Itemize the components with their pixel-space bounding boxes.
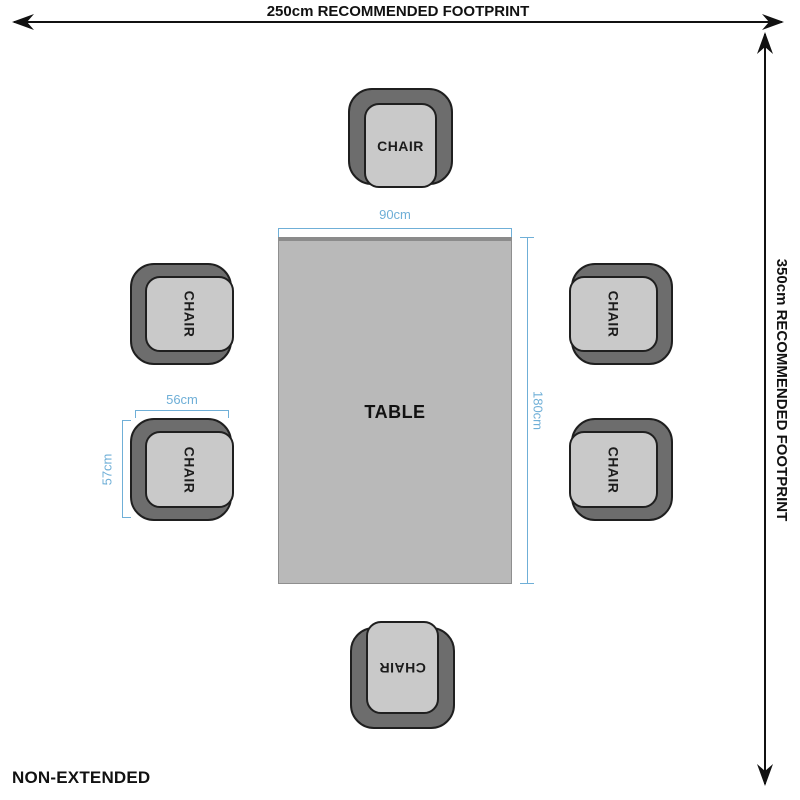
table-width-dim-tick-left xyxy=(278,228,279,237)
chair-width-dim-label: 56cm xyxy=(132,392,232,407)
table-width-dim-line xyxy=(278,228,512,229)
table-depth-dim-tick-top xyxy=(520,237,534,238)
footprint-diagram: 250cm RECOMMENDED FOOTPRINT 350cm RECOMM… xyxy=(0,0,800,800)
chair-seat: CHAIR xyxy=(145,276,234,352)
chair-top: CHAIR xyxy=(348,88,453,185)
chair-width-dim-tick-right xyxy=(228,410,229,418)
footprint-height-label: 350cm RECOMMENDED FOOTPRINT xyxy=(774,220,790,560)
chair-seat: CHAIR xyxy=(569,431,658,508)
chair-width-dim-line xyxy=(135,410,229,411)
chair-label: CHAIR xyxy=(379,660,426,676)
chair-left-lower: CHAIR xyxy=(130,418,232,521)
chair-seat: CHAIR xyxy=(145,431,234,508)
footprint-height-arrow xyxy=(755,30,775,788)
table: TABLE xyxy=(278,237,512,584)
chair-width-dim-tick-left xyxy=(135,410,136,418)
table-depth-dim-label: 180cm xyxy=(531,381,546,441)
chair-label: CHAIR xyxy=(377,138,424,154)
footprint-width-arrow xyxy=(10,12,786,32)
table-depth-dim-tick-bottom xyxy=(520,583,534,584)
chair-seat: CHAIR xyxy=(364,103,437,188)
chair-right-lower: CHAIR xyxy=(571,418,673,521)
chair-right-upper: CHAIR xyxy=(571,263,673,365)
chair-seat: CHAIR xyxy=(569,276,658,352)
chair-depth-dim-label: 57cm xyxy=(100,445,115,495)
table-width-dim-tick-right xyxy=(511,228,512,237)
chair-label: CHAIR xyxy=(606,291,622,338)
chair-seat: CHAIR xyxy=(366,621,439,714)
table-label: TABLE xyxy=(364,402,425,423)
chair-label: CHAIR xyxy=(182,291,198,338)
table-depth-dim-line xyxy=(527,237,528,584)
chair-left-upper: CHAIR xyxy=(130,263,232,365)
chair-label: CHAIR xyxy=(182,446,198,493)
table-width-dim-label: 90cm xyxy=(345,207,445,222)
variant-label: NON-EXTENDED xyxy=(12,768,150,788)
chair-label: CHAIR xyxy=(606,446,622,493)
chair-bottom: CHAIR xyxy=(350,627,455,729)
chair-depth-dim-line xyxy=(122,420,123,518)
